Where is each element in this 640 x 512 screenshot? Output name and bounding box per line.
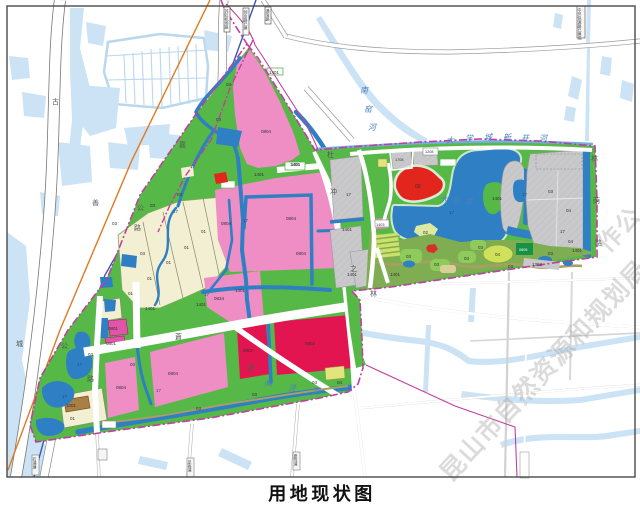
svg-text:03: 03 [130,362,136,367]
svg-text:新: 新 [503,133,512,142]
svg-text:17: 17 [156,388,162,393]
svg-text:开: 开 [521,134,530,143]
svg-text:03: 03 [312,380,318,385]
svg-text:03: 03 [140,251,146,256]
svg-text:夏驾浦: 夏驾浦 [294,453,299,467]
svg-text:0804: 0804 [116,385,127,390]
svg-text:1401: 1401 [254,172,265,177]
svg-text:0804: 0804 [221,221,232,226]
svg-text:0834: 0834 [214,296,225,301]
svg-text:大: 大 [446,136,455,145]
svg-text:窑: 窑 [364,105,373,114]
svg-text:公: 公 [137,204,144,212]
svg-text:1401: 1401 [196,302,207,307]
svg-text:浦: 浦 [247,363,254,372]
svg-text:03: 03 [196,406,202,411]
svg-text:0804: 0804 [296,251,307,256]
svg-text:1401: 1401 [291,162,301,167]
svg-text:中环快速路已建成: 中环快速路已建成 [578,7,583,41]
svg-text:03: 03 [434,262,440,267]
svg-text:荫: 荫 [593,196,600,205]
svg-text:03: 03 [112,221,118,226]
svg-text:1001: 1001 [66,403,77,408]
svg-text:04: 04 [566,208,572,213]
svg-text:杜: 杜 [327,150,334,159]
svg-text:善: 善 [92,198,99,207]
svg-text:嘉: 嘉 [179,140,186,149]
svg-text:古: 古 [52,97,59,106]
svg-text:学: 学 [465,134,474,143]
svg-text:17: 17 [77,362,83,367]
svg-text:0804: 0804 [286,216,297,221]
svg-text:01: 01 [166,260,172,265]
svg-text:1403: 1403 [376,223,384,227]
svg-text:蒼: 蒼 [175,332,182,341]
svg-text:林: 林 [370,289,377,298]
svg-text:1401: 1401 [572,248,583,253]
svg-text:0804: 0804 [168,371,179,376]
svg-text:1302: 1302 [532,262,543,267]
svg-text:大: 大 [440,195,449,204]
svg-text:01: 01 [184,245,190,250]
svg-text:0801: 0801 [108,326,119,331]
svg-text:03: 03 [478,245,484,250]
svg-text:17: 17 [560,229,566,234]
svg-text:闸: 闸 [264,379,273,388]
svg-text:石浦塘: 石浦塘 [33,457,38,470]
svg-text:通海路: 通海路 [266,8,271,22]
svg-text:03: 03 [216,117,222,122]
svg-text:0805: 0805 [519,248,527,252]
svg-text:0802: 0802 [243,348,254,353]
svg-text:03: 03 [177,192,183,197]
svg-text:渔: 渔 [452,196,461,205]
svg-text:城: 城 [16,340,23,348]
svg-text:17: 17 [173,209,179,214]
svg-text:0801: 0801 [106,341,117,346]
svg-text:苏虹机场路: 苏虹机场路 [225,8,230,30]
svg-text:城: 城 [484,133,493,142]
svg-text:03: 03 [406,254,412,259]
svg-text:1401: 1401 [347,272,358,277]
svg-text:03: 03 [508,264,514,269]
svg-text:用地现状图: 用地现状图 [268,483,376,504]
svg-text:01: 01 [147,276,153,281]
svg-text:03: 03 [464,256,470,261]
svg-text:路: 路 [87,374,94,383]
svg-text:林: 林 [591,154,598,163]
svg-text:03: 03 [252,392,258,397]
svg-text:路: 路 [134,223,141,232]
svg-text:17: 17 [522,192,528,197]
svg-text:足高浦: 足高浦 [188,460,193,473]
svg-text:1401: 1401 [145,306,156,311]
svg-text:17: 17 [449,210,455,215]
svg-text:创业路已建: 创业路已建 [244,9,249,31]
svg-text:02: 02 [423,230,429,235]
svg-text:03: 03 [226,82,232,87]
svg-text:01: 01 [70,416,76,421]
svg-text:17: 17 [243,218,249,223]
svg-text:04: 04 [337,380,343,385]
svg-text:01: 01 [201,229,207,234]
svg-text:03: 03 [88,352,94,357]
svg-text:04: 04 [495,252,501,257]
svg-text:03: 03 [548,251,554,256]
svg-text:1401: 1401 [235,288,246,293]
svg-text:09: 09 [415,184,421,190]
svg-text:公: 公 [61,342,68,350]
svg-text:03: 03 [548,189,554,194]
svg-text:1401: 1401 [269,70,280,75]
svg-text:01: 01 [128,291,134,296]
svg-text:17: 17 [62,394,68,399]
svg-text:冲: 冲 [330,187,337,196]
svg-text:泾: 泾 [288,384,297,393]
svg-text:1401: 1401 [390,272,401,277]
svg-text:0802: 0802 [305,341,316,346]
svg-text:03: 03 [150,203,156,208]
svg-text:17: 17 [204,292,210,297]
svg-text:1708: 1708 [395,158,403,162]
svg-text:1208: 1208 [425,150,433,154]
svg-text:0804: 0804 [261,129,272,134]
svg-text:04: 04 [568,239,574,244]
svg-text:1401: 1401 [492,196,503,201]
svg-text:1401: 1401 [342,227,353,232]
svg-text:17: 17 [346,192,352,197]
